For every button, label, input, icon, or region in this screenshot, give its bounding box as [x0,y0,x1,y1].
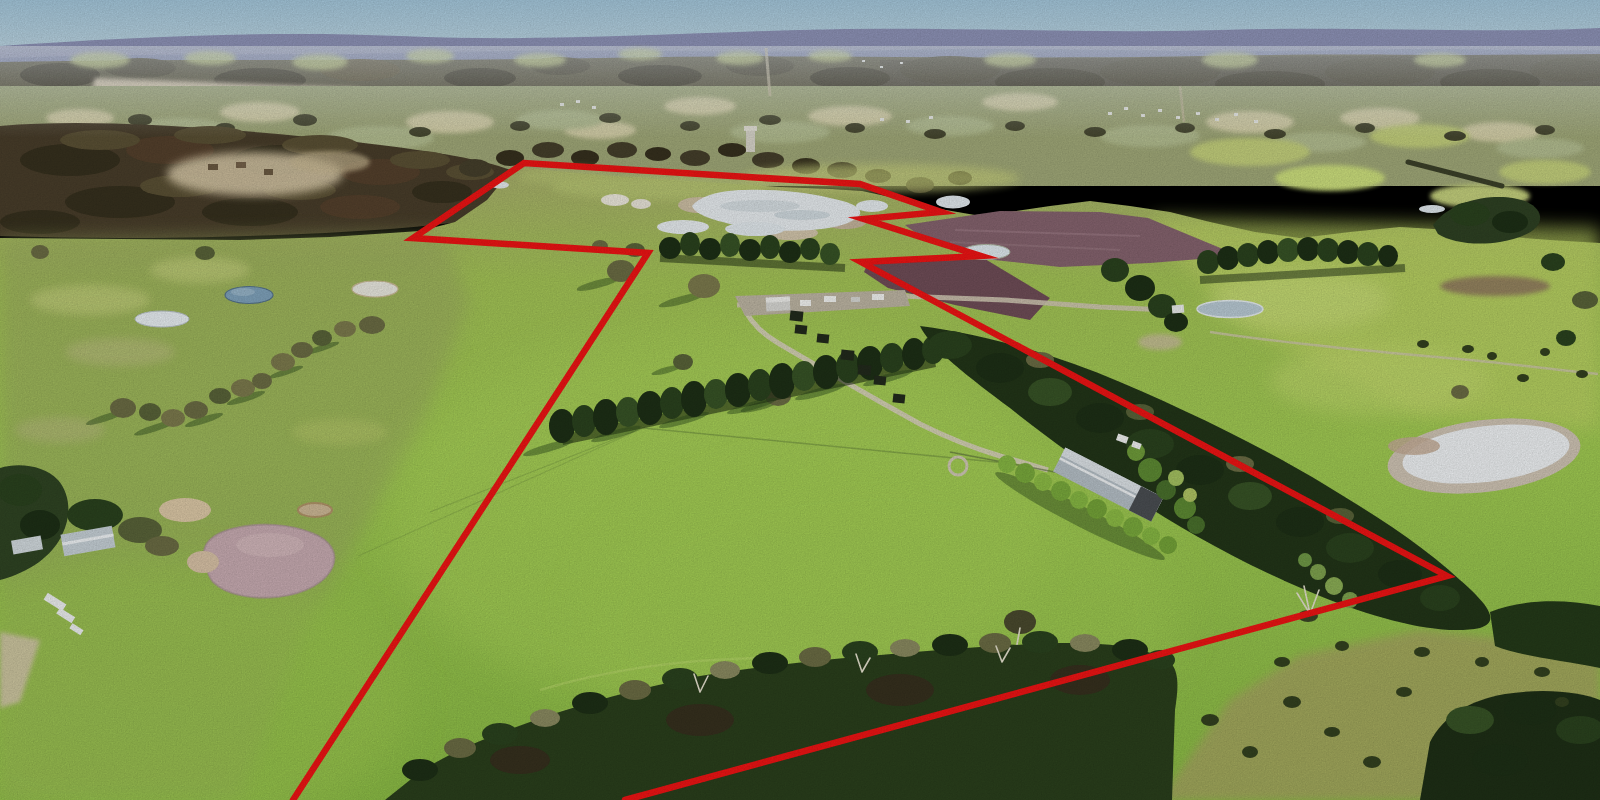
aerial-photo-canvas [0,0,1600,800]
aerial-photo [0,0,1600,800]
photo-grain-overlay [0,0,1600,800]
